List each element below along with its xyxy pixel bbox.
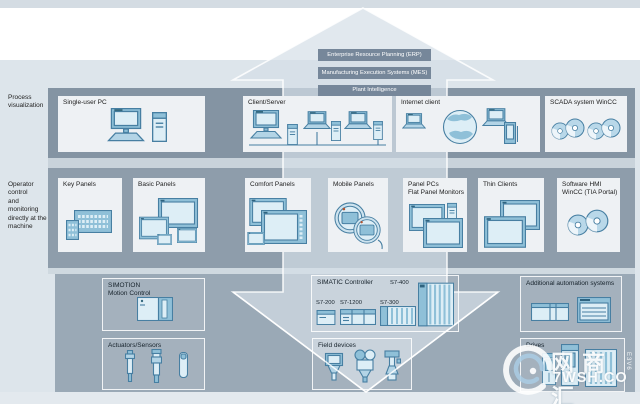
box-key-panels: Key Panels [58,178,122,252]
top-strip [0,0,640,8]
box-scada-wincc: SCADA system WinCC [545,96,627,152]
cd-software-icon [557,178,620,252]
box-field-devices: Field devices [312,338,412,390]
box-internet-client: Internet client [396,96,540,152]
automation-pyramid-diagram: Process visualization Operator control a… [0,0,640,404]
client-server-network-icon [243,96,392,152]
plc-icons [312,276,458,331]
keypad-icon [58,178,122,252]
box-client-server: Client/Server [243,96,392,152]
side-label-process: Process visualization [8,94,50,111]
cd-software-icon [545,96,627,152]
box-drives: Drives [520,338,625,392]
box-panel-pcs: Panel PCs Flat Panel Monitors [403,178,467,252]
drives-icon [521,339,624,391]
box-simatic-controller: SIMATIC Controller S7-400 S7-200 S7-1200… [311,275,459,332]
comfort-panels-icon [245,178,311,252]
sensors-icon [103,339,204,389]
box-software-hmi: Software HMI WinCC (TIA Portal) [557,178,620,252]
bottom-strip [0,392,640,404]
field-devices-icon [313,339,411,389]
panel-pcs-icon [403,178,467,252]
side-label-operator: Operator control and monitoring directly… [8,181,50,232]
motion-controller-icon [103,279,204,330]
section-gap-1 [48,158,635,168]
thin-clients-icon [478,178,544,252]
automation-devices-icon [521,277,621,331]
internet-client-icon [396,96,540,152]
basic-panels-icon [133,178,205,252]
box-single-user-pc: Single-user PC [58,96,205,152]
bar-plant-intelligence: Plant Intelligence [318,85,431,96]
box-thin-clients: Thin Clients [478,178,544,252]
box-mobile-panels: Mobile Panels [328,178,388,252]
box-comfort-panels: Comfort Panels [245,178,311,252]
bar-erp: Enterprise Resource Planning (ERP) [318,49,431,61]
box-simotion: SIMOTION Motion Control [102,278,205,331]
box-basic-panels: Basic Panels [133,178,205,252]
desktop-pc-icon [58,96,205,152]
bar-mes: Manufacturing Execution Systems (MES) [318,67,431,79]
box-actuators-sensors: Actuators/Sensors [102,338,205,390]
mobile-panels-icon [328,178,388,252]
box-additional-automation: Additional automation systems [520,276,622,332]
